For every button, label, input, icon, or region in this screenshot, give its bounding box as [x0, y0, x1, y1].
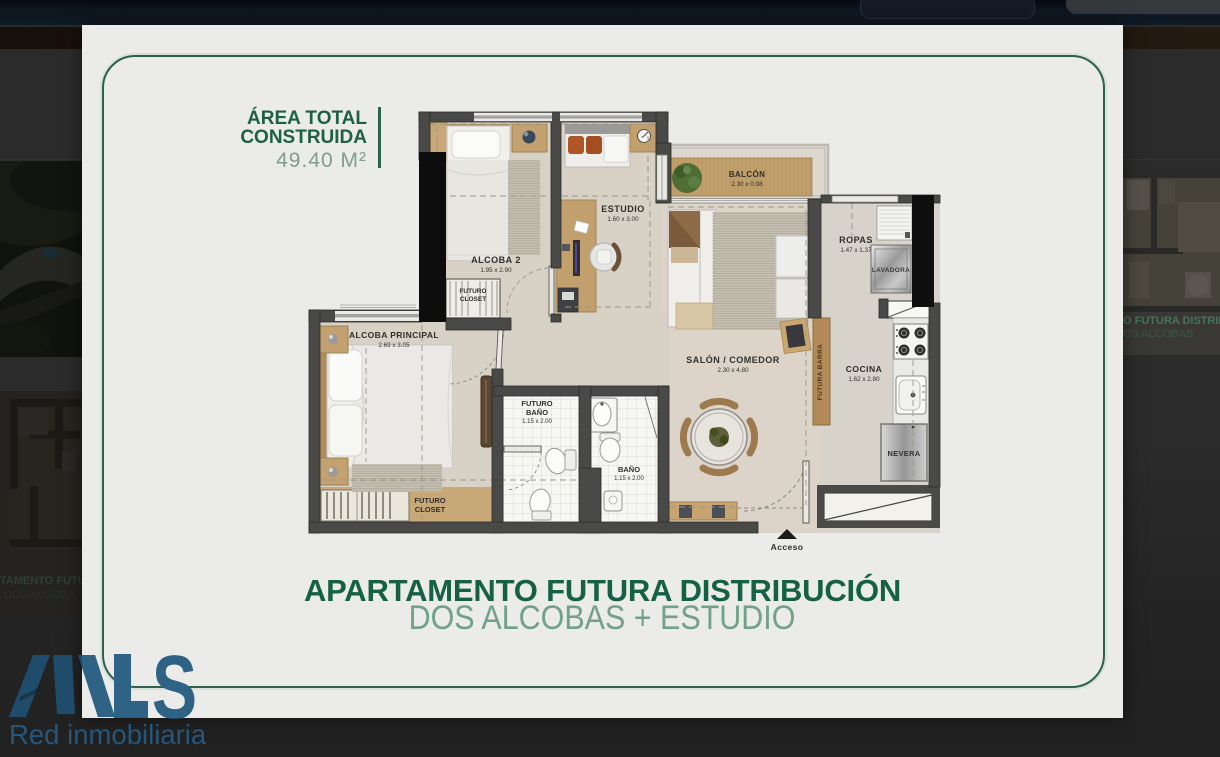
- svg-text:1.47 x 1.37: 1.47 x 1.37: [840, 247, 872, 254]
- svg-text:1.95 x 2.90: 1.95 x 2.90: [480, 267, 512, 274]
- svg-text:1.15 x 2.00: 1.15 x 2.00: [522, 419, 552, 425]
- svg-text:FUTURO: FUTURO: [414, 496, 445, 505]
- svg-text:NEVERA: NEVERA: [887, 449, 920, 458]
- svg-text:LAVADORA: LAVADORA: [872, 267, 910, 274]
- svg-text:ROPAS: ROPAS: [839, 235, 873, 245]
- svg-text:Red inmobiliaria: Red inmobiliaria: [9, 719, 207, 750]
- svg-text:2.30 x 0.98: 2.30 x 0.98: [731, 181, 763, 188]
- svg-text:2.69 x 3.05: 2.69 x 3.05: [378, 342, 410, 349]
- svg-text:BALCÓN: BALCÓN: [729, 170, 766, 179]
- svg-text:BAÑO: BAÑO: [618, 465, 640, 474]
- svg-text:CLOSET: CLOSET: [415, 505, 446, 514]
- svg-text:1.15 x 2.00: 1.15 x 2.00: [614, 476, 644, 482]
- svg-text:ALCOBA 2: ALCOBA 2: [471, 255, 521, 265]
- svg-text:BAÑO: BAÑO: [526, 408, 548, 417]
- svg-text:O FUTURA DISTRIBU: O FUTURA DISTRIBU: [1123, 315, 1220, 327]
- svg-text:FUTURO: FUTURO: [459, 288, 486, 295]
- svg-text:2.30 x 4.80: 2.30 x 4.80: [717, 367, 749, 374]
- svg-text:FUTURO: FUTURO: [521, 399, 552, 408]
- svg-text:SALÓN / COMEDOR: SALÓN / COMEDOR: [686, 354, 780, 365]
- svg-text:Acceso: Acceso: [771, 542, 804, 552]
- svg-text:COCINA: COCINA: [846, 364, 883, 374]
- svg-text:CLOSET: CLOSET: [460, 296, 486, 303]
- svg-text:1.62 x 2.80: 1.62 x 2.80: [848, 376, 880, 383]
- svg-text:ESTUDIO: ESTUDIO: [601, 204, 645, 214]
- svg-text:ALCOBA PRINCIPAL: ALCOBA PRINCIPAL: [349, 330, 439, 340]
- svg-text:OS ALCOBAS: OS ALCOBAS: [1123, 328, 1193, 340]
- svg-text:1.60 x 3.00: 1.60 x 3.00: [607, 216, 639, 223]
- svg-text:FUTURA BARRA: FUTURA BARRA: [817, 344, 824, 401]
